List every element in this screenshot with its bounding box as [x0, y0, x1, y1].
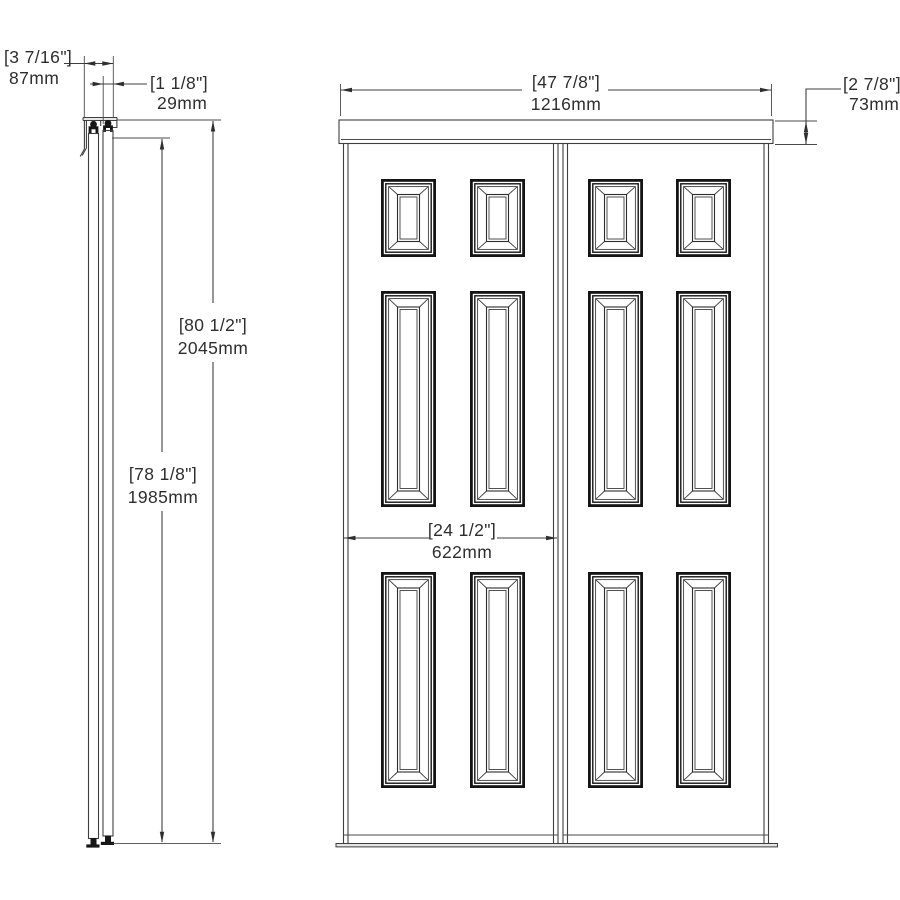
- left-door: [344, 144, 559, 844]
- dim-track-height: [2 7/8"] 73mm: [775, 74, 900, 145]
- dim-door-thickness-inches: [1 1/8"]: [150, 73, 208, 93]
- dim-overall-height-mm: 2045mm: [178, 338, 249, 358]
- dim-track-height-mm: 73mm: [849, 94, 899, 114]
- door-panel: [589, 180, 641, 255]
- right-door: [563, 144, 769, 844]
- hanger-roller-front: [89, 121, 99, 134]
- side-door-slab-front: [89, 134, 99, 839]
- dim-door-width: [24 1/2"] 622mm: [344, 520, 557, 562]
- dim-door-thickness: [1 1/8"] 29mm: [90, 73, 208, 124]
- dim-door-thickness-mm: 29mm: [157, 93, 207, 113]
- bottom-sill: [336, 844, 778, 847]
- door-panel: [589, 573, 641, 786]
- door-panel: [382, 573, 434, 786]
- front-elevation-view: [336, 120, 778, 847]
- dim-door-width-inches: [24 1/2"]: [428, 520, 496, 540]
- header-track: [339, 120, 773, 144]
- door-panel: [382, 292, 434, 505]
- side-profile-view: [80, 118, 117, 848]
- dim-overall-height-inches: [80 1/2"]: [179, 315, 247, 335]
- door-panel: [471, 292, 523, 505]
- floor-guide-rear: [101, 836, 114, 846]
- dim-door-height-inches: [78 1/8"]: [129, 464, 197, 484]
- door-panel: [677, 573, 729, 786]
- dim-overall-depth-inches: [3 7/16"]: [4, 47, 72, 67]
- door-panel: [471, 573, 523, 786]
- door-panel: [677, 292, 729, 505]
- dim-door-width-mm: 622mm: [432, 542, 492, 562]
- drawing-page: [3 7/16"] 87mm [1 1/8"] 29mm [80 1/2"] 2…: [0, 0, 900, 900]
- dim-overall-width: [47 7/8"] 1216mm: [341, 72, 772, 116]
- dim-door-height: [78 1/8"] 1985mm: [112, 138, 198, 843]
- door-panel: [471, 180, 523, 255]
- side-door-slab-rear: [103, 131, 113, 837]
- dim-overall-width-inches: [47 7/8"]: [532, 72, 600, 92]
- dim-overall-depth-mm: 87mm: [9, 68, 59, 88]
- door-panel: [677, 180, 729, 255]
- dim-overall-width-mm: 1216mm: [531, 94, 602, 114]
- dim-door-height-mm: 1985mm: [128, 487, 199, 507]
- dim-overall-depth: [3 7/16"] 87mm: [4, 47, 113, 117]
- dim-track-height-inches: [2 7/8"]: [843, 74, 900, 94]
- floor-guide-front: [86, 838, 99, 848]
- dimension-drawing-canvas: [3 7/16"] 87mm [1 1/8"] 29mm [80 1/2"] 2…: [0, 0, 900, 900]
- door-panel: [382, 180, 434, 255]
- door-panel: [589, 292, 641, 505]
